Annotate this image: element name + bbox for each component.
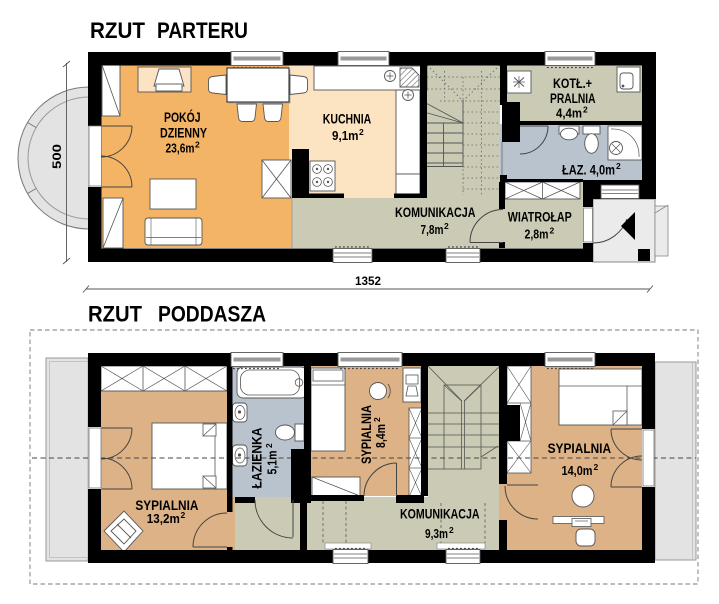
svg-text:ŁAZ. 4,0m: ŁAZ. 4,0m xyxy=(562,163,615,178)
svg-text:SYPIALNIA: SYPIALNIA xyxy=(548,441,612,456)
svg-text:2: 2 xyxy=(372,417,382,422)
svg-text:POKÓJ: POKÓJ xyxy=(164,110,201,125)
svg-text:4,4m: 4,4m xyxy=(556,106,582,121)
svg-text:1352: 1352 xyxy=(355,276,381,288)
svg-text:8,4m: 8,4m xyxy=(373,424,388,448)
svg-text:9,3m: 9,3m xyxy=(425,526,448,541)
svg-text:2: 2 xyxy=(359,127,364,137)
svg-text:RZUT: RZUT xyxy=(90,18,146,43)
svg-text:2: 2 xyxy=(594,462,599,472)
svg-text:14,0m: 14,0m xyxy=(562,463,593,478)
svg-text:2,8m: 2,8m xyxy=(525,227,549,242)
svg-text:PODDASZA: PODDASZA xyxy=(158,302,266,327)
svg-text:ŁAZIENKA: ŁAZIENKA xyxy=(250,427,265,488)
svg-text:9,1m: 9,1m xyxy=(332,128,359,143)
svg-text:2: 2 xyxy=(264,443,274,448)
svg-text:500: 500 xyxy=(52,144,64,169)
svg-text:2: 2 xyxy=(444,221,449,231)
svg-text:2: 2 xyxy=(449,525,454,535)
svg-text:RZUT: RZUT xyxy=(88,302,143,327)
svg-text:WIATROŁAP: WIATROŁAP xyxy=(508,210,572,225)
svg-text:DZIENNY: DZIENNY xyxy=(160,126,207,141)
svg-text:KOTŁ.+: KOTŁ.+ xyxy=(553,76,592,91)
svg-text:5,1m: 5,1m xyxy=(265,451,280,475)
svg-text:2: 2 xyxy=(616,161,621,171)
svg-text:KOMUNIKACJA: KOMUNIKACJA xyxy=(395,205,476,220)
svg-text:2: 2 xyxy=(181,510,186,520)
svg-text:2: 2 xyxy=(195,140,200,150)
svg-text:PRALNIA: PRALNIA xyxy=(550,91,596,106)
svg-text:SYPIALNIA: SYPIALNIA xyxy=(359,405,374,464)
svg-text:KUCHNIA: KUCHNIA xyxy=(323,112,372,127)
svg-text:2: 2 xyxy=(550,226,555,236)
svg-text:KOMUNIKACJA: KOMUNIKACJA xyxy=(400,507,480,522)
svg-text:23,6m: 23,6m xyxy=(166,141,195,156)
svg-text:PARTERU: PARTERU xyxy=(157,18,248,43)
svg-text:13,2m: 13,2m xyxy=(147,511,180,526)
svg-text:7,8m: 7,8m xyxy=(421,222,444,237)
svg-text:2: 2 xyxy=(583,105,588,115)
